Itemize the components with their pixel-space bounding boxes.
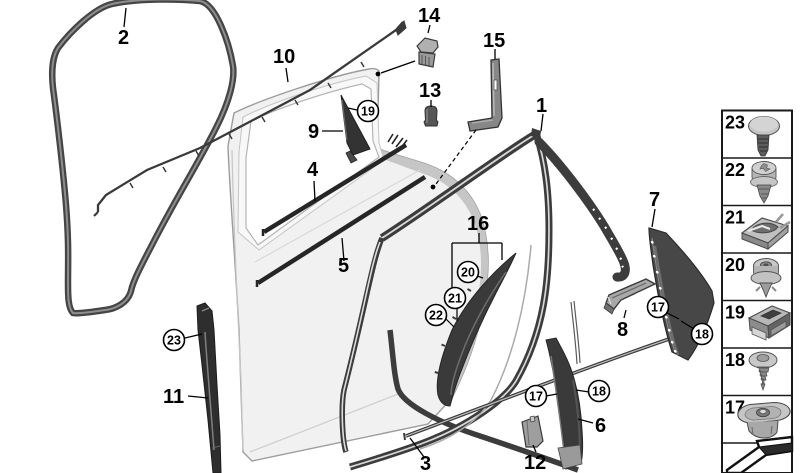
svg-text:10: 10 <box>273 46 295 68</box>
svg-text:21: 21 <box>448 292 462 306</box>
svg-text:6: 6 <box>595 415 606 437</box>
svg-text:18: 18 <box>592 385 606 399</box>
svg-text:8: 8 <box>617 319 628 341</box>
svg-text:12: 12 <box>524 452 546 473</box>
svg-text:15: 15 <box>483 30 505 52</box>
svg-text:22: 22 <box>725 160 745 180</box>
svg-text:3: 3 <box>420 453 431 473</box>
svg-text:18: 18 <box>725 350 745 370</box>
svg-text:2: 2 <box>118 27 129 49</box>
svg-text:19: 19 <box>361 105 375 119</box>
svg-text:21: 21 <box>725 208 745 228</box>
svg-text:16: 16 <box>467 213 489 235</box>
svg-text:20: 20 <box>725 255 745 275</box>
svg-text:23: 23 <box>167 334 181 348</box>
svg-text:1: 1 <box>536 95 547 117</box>
svg-text:18: 18 <box>695 328 709 342</box>
svg-text:14: 14 <box>418 5 441 27</box>
svg-text:17: 17 <box>529 390 543 404</box>
svg-text:4: 4 <box>307 159 319 181</box>
svg-text:20: 20 <box>461 266 475 280</box>
svg-text:23: 23 <box>725 113 745 133</box>
svg-text:11: 11 <box>163 386 184 408</box>
svg-text:19: 19 <box>725 303 745 323</box>
svg-text:9: 9 <box>308 121 319 143</box>
svg-text:17: 17 <box>651 301 665 315</box>
svg-text:22: 22 <box>429 309 443 323</box>
svg-text:13: 13 <box>419 80 441 102</box>
svg-text:7: 7 <box>649 189 660 211</box>
